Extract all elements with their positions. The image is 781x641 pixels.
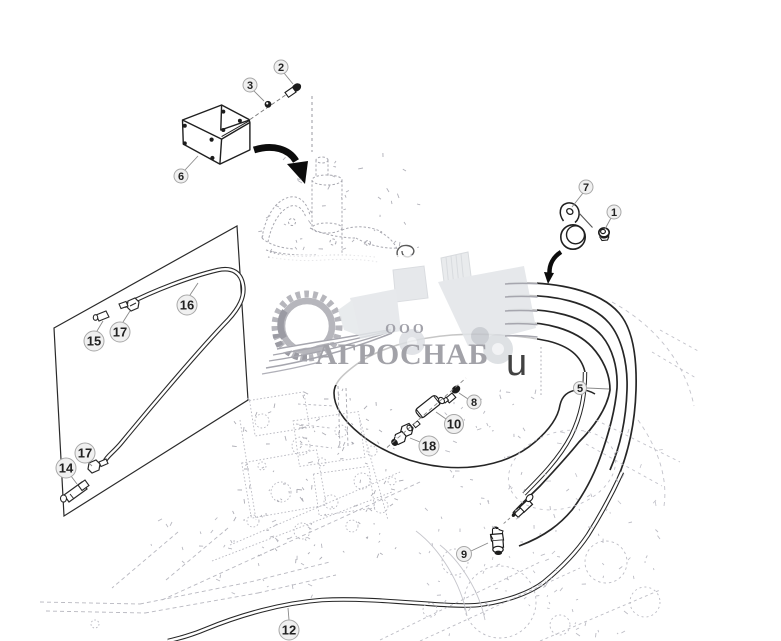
svg-text:18: 18 (422, 439, 436, 454)
svg-text:u: u (506, 342, 527, 384)
svg-text:6: 6 (178, 171, 184, 183)
svg-text:15: 15 (87, 334, 101, 349)
svg-text:8: 8 (471, 397, 477, 409)
svg-text:3: 3 (247, 80, 253, 92)
svg-text:17: 17 (78, 446, 92, 461)
svg-text:10: 10 (447, 417, 461, 432)
svg-text:АГРОСНАБ: АГРОСНАБ (315, 338, 488, 371)
svg-text:5: 5 (577, 383, 583, 395)
svg-text:12: 12 (282, 623, 296, 638)
svg-text:2: 2 (278, 62, 284, 74)
svg-text:14: 14 (59, 461, 74, 476)
svg-text:9: 9 (461, 549, 467, 561)
svg-text:1: 1 (611, 207, 617, 219)
svg-text:ООО: ООО (385, 322, 427, 337)
svg-text:7: 7 (583, 182, 589, 194)
svg-text:17: 17 (113, 325, 127, 340)
svg-text:16: 16 (180, 298, 194, 313)
